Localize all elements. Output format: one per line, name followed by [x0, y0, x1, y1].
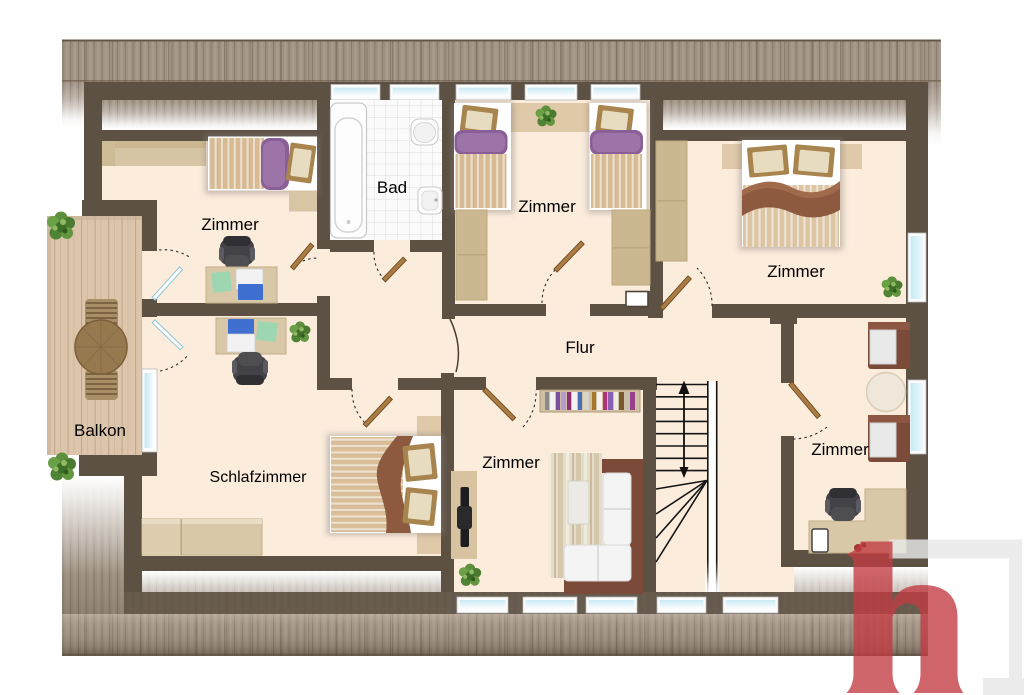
svg-text:Zimmer: Zimmer [482, 453, 540, 472]
svg-text:Zimmer: Zimmer [518, 197, 576, 216]
svg-text:Schlafzimmer: Schlafzimmer [210, 469, 308, 486]
svg-text:Zimmer: Zimmer [811, 440, 869, 459]
svg-text:Bad: Bad [377, 178, 407, 197]
svg-text:Balkon: Balkon [74, 421, 126, 440]
svg-text:Zimmer: Zimmer [201, 215, 259, 234]
svg-text:Flur: Flur [565, 338, 595, 357]
svg-text:Zimmer: Zimmer [767, 262, 825, 281]
